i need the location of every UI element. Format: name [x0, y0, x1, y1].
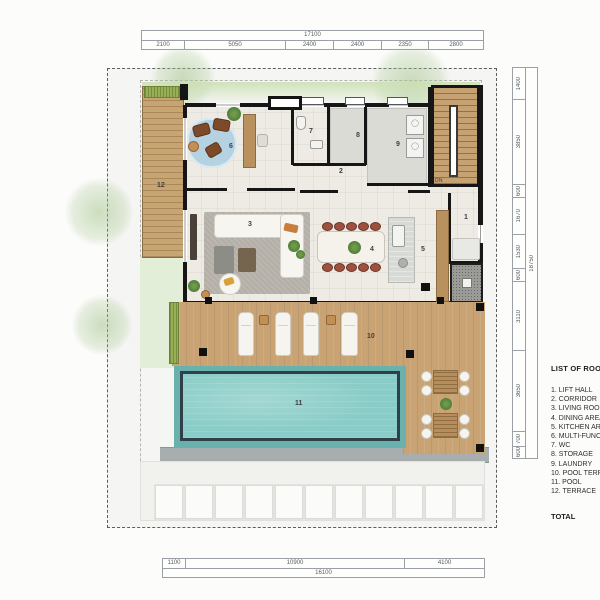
dining-chair: [370, 222, 381, 231]
room-label-5: 5: [421, 246, 425, 253]
pool-water: [180, 371, 400, 441]
dining-chair: [358, 263, 369, 272]
outdoor-chair: [421, 371, 432, 382]
outdoor-chair: [421, 428, 432, 439]
dimension-segment-row: 2100 5050 2400 2400 2350 2800: [142, 40, 483, 49]
dimension-value: 3850: [513, 99, 525, 184]
stool: [188, 141, 199, 152]
paver-tile: [305, 485, 333, 519]
plant-icon: [348, 241, 361, 254]
desk: [243, 114, 256, 168]
paver-tile: [185, 485, 213, 519]
column: [406, 350, 414, 358]
deck-planter: [169, 302, 179, 364]
dimension-table-bottom: 1100 10900 4100 16100: [162, 558, 485, 578]
plant-icon: [296, 250, 305, 259]
column: [476, 303, 484, 311]
outdoor-chair: [421, 385, 432, 396]
paver-tile: [215, 485, 243, 519]
outdoor-chair: [459, 385, 470, 396]
room-list-total: TOTAL: [551, 512, 600, 521]
outdoor-chair: [459, 371, 470, 382]
paver-tile: [365, 485, 393, 519]
dining-chair: [346, 263, 357, 272]
dining-chair: [346, 222, 357, 231]
wall-segment: [327, 107, 330, 165]
washbasin: [310, 140, 323, 149]
terrace-planter: [144, 86, 180, 98]
plant-icon: [227, 107, 241, 121]
paver-tile: [245, 485, 273, 519]
wall-segment: [293, 163, 366, 166]
window-sill: [300, 97, 324, 105]
dimension-value: 600: [513, 184, 525, 197]
room-list-item: 2. CORRIDOR: [551, 395, 600, 404]
room-label-9: 9: [396, 141, 400, 148]
window-sill: [345, 97, 365, 105]
column: [199, 348, 207, 356]
dimension-table-right: 1400 3850 600 1670 1530 600 3110 3650 70…: [512, 67, 538, 459]
coffee-table: [214, 246, 234, 274]
room-label-2: 2: [339, 168, 343, 175]
paver-tile: [395, 485, 423, 519]
dimension-total-row: 17100: [142, 31, 483, 40]
stair-well: [449, 105, 458, 177]
sun-lounger: [275, 312, 291, 356]
sun-lounger: [303, 312, 319, 356]
lift-car: [462, 278, 472, 288]
dimension-value: 2350: [381, 41, 428, 49]
dimension-value: 3650: [513, 350, 525, 431]
paver-tile: [455, 485, 483, 519]
washing-machine: ◯: [406, 115, 424, 135]
floor-plan-canvas: DN ◯ ◯: [0, 0, 600, 600]
dimension-value: 10900: [185, 559, 404, 568]
outdoor-chair: [459, 428, 470, 439]
dimension-value: 600: [513, 446, 525, 458]
room-list-title: LIST OF ROOMS: [551, 364, 600, 373]
room-list-item: 9. LAUNDRY: [551, 460, 600, 469]
entry-bay: [268, 96, 302, 110]
tree-icon: [72, 295, 132, 355]
sun-lounger: [341, 312, 358, 356]
lift-lobby-step: [452, 238, 480, 260]
outdoor-table: [433, 370, 458, 394]
dimension-value: 5050: [184, 41, 285, 49]
wall-segment: [180, 84, 188, 100]
paver-tile: [275, 485, 303, 519]
plant-icon: [440, 398, 452, 410]
dimension-value: 1100: [163, 559, 185, 568]
wall-segment: [408, 190, 430, 193]
kitchen-counter: [436, 210, 449, 302]
room-label-4: 4: [370, 246, 374, 253]
paver-tile: [155, 485, 183, 519]
dimension-value: 1530: [513, 234, 525, 268]
room-label-11: 11: [295, 400, 302, 407]
toilet: [296, 116, 306, 130]
dimension-value: 1670: [513, 197, 525, 234]
wall-segment: [300, 190, 338, 193]
room-list-item: 5. KITCHEN AREA: [551, 423, 600, 432]
room-list-item: 1. LIFT HALL: [551, 386, 600, 395]
room-list-item: 4. DINING AREA: [551, 414, 600, 423]
dimension-total-row: 16100: [163, 568, 484, 577]
stair-direction-label: DN: [435, 178, 443, 184]
paver-tile: [425, 485, 453, 519]
room-label-3: 3: [248, 221, 252, 228]
sliding-door: [183, 210, 187, 262]
room-list: LIST OF ROOMS 1. LIFT HALL 2. CORRIDOR 3…: [551, 364, 600, 521]
room-list-items: 1. LIFT HALL 2. CORRIDOR 3. LIVING ROOM …: [551, 386, 600, 496]
dimension-segment-row: 1100 10900 4100: [163, 559, 484, 568]
dimension-total-column: 18750: [525, 68, 537, 458]
room-list-item: 10. POOL TERRACE: [551, 469, 600, 478]
window: [216, 103, 240, 107]
wall-segment: [367, 183, 429, 186]
paver-tile: [335, 485, 363, 519]
dimension-value: 600: [513, 268, 525, 281]
column: [476, 444, 484, 452]
dimension-value: 4100: [404, 559, 484, 568]
dining-chair: [358, 222, 369, 231]
room-label-12: 12: [157, 182, 165, 189]
dining-chair: [322, 263, 333, 272]
room-list-item: 8. STORAGE: [551, 450, 600, 459]
dimension-value: 2400: [333, 41, 381, 49]
dining-chair: [334, 263, 345, 272]
tree-icon: [65, 178, 133, 246]
outdoor-table: [433, 413, 458, 438]
outdoor-chair: [421, 414, 432, 425]
dimension-table-top: 17100 2100 5050 2400 2400 2350 2800: [141, 30, 484, 50]
column: [205, 297, 212, 304]
window-sill: [387, 97, 408, 105]
wall-segment: [247, 188, 295, 191]
dimension-value: 700: [513, 431, 525, 446]
desk-chair: [257, 134, 268, 147]
dimension-value: 3110: [513, 281, 525, 350]
room-label-7: 7: [309, 128, 313, 135]
dining-chair: [334, 222, 345, 231]
terrace-deck: [142, 86, 184, 258]
column: [310, 297, 317, 304]
sun-lounger: [238, 312, 254, 356]
dining-chair: [370, 263, 381, 272]
room-list-item: 12. TERRACE: [551, 487, 600, 496]
room-list-item: 6. MULTI-FUNCTION: [551, 432, 600, 441]
side-table: [259, 315, 269, 325]
room-list-item: 7. WC: [551, 441, 600, 450]
outdoor-chair: [459, 414, 470, 425]
washing-machine: ◯: [406, 138, 424, 158]
coffee-table: [238, 248, 256, 272]
room-label-6: 6: [229, 143, 233, 150]
dimension-value: 2400: [285, 41, 333, 49]
wall-segment: [185, 188, 227, 191]
room-list-item: 11. POOL: [551, 478, 600, 487]
column: [421, 283, 430, 291]
tv-sideboard: [190, 214, 197, 260]
room-list-item: 3. LIVING ROOM: [551, 404, 600, 413]
room-label-8: 8: [356, 132, 360, 139]
dimension-value: 16100: [163, 569, 484, 577]
dimension-value: 17100: [142, 31, 483, 40]
cooktop: [398, 258, 408, 268]
plant-icon: [188, 280, 200, 292]
room-label-10: 10: [367, 333, 375, 340]
dimension-segment-column: 1400 3850 600 1670 1530 600 3110 3650 70…: [513, 68, 525, 458]
dimension-value: 18750: [526, 68, 537, 458]
column: [437, 297, 444, 304]
paver-row: [154, 484, 484, 520]
dimension-value: 2800: [428, 41, 483, 49]
kitchen-sink: [392, 225, 405, 247]
dimension-value: 1400: [513, 68, 525, 99]
wall-segment: [291, 107, 294, 165]
wall-segment: [364, 107, 367, 165]
side-table: [326, 315, 336, 325]
room-label-1: 1: [464, 214, 468, 221]
dining-chair: [322, 222, 333, 231]
dimension-value: 2100: [142, 41, 184, 49]
